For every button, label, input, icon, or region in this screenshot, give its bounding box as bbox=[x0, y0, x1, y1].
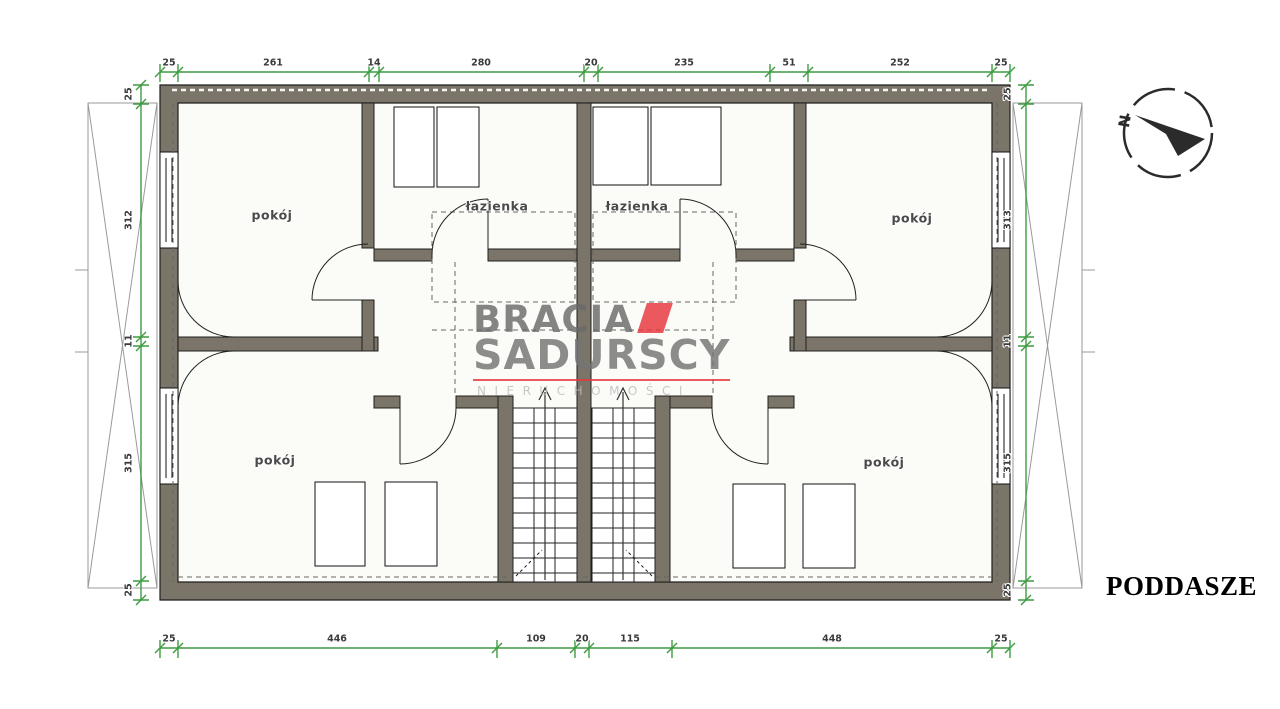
dim-bottom-3: 109 bbox=[526, 634, 546, 645]
room-label-pokoj-top-left: pokój bbox=[252, 208, 293, 223]
watermark-red-rule bbox=[473, 379, 730, 381]
floorplan-page: 25 261 14 280 20 235 51 252 25 25 446 10… bbox=[0, 0, 1280, 709]
dim-left-3: 11 bbox=[124, 334, 135, 347]
dim-top-3: 14 bbox=[367, 58, 380, 69]
room-label-lazienka-right: łazienka bbox=[606, 199, 669, 214]
dim-bottom-5: 115 bbox=[620, 634, 640, 645]
dim-bottom-6: 448 bbox=[822, 634, 842, 645]
dim-left-4: 315 bbox=[124, 453, 135, 473]
dim-right-4: 315 bbox=[1003, 453, 1014, 473]
dim-top-1: 25 bbox=[162, 58, 175, 69]
dim-right-1: 25 bbox=[1003, 87, 1014, 100]
dim-top-6: 235 bbox=[674, 58, 694, 69]
dim-bottom-7: 25 bbox=[994, 634, 1007, 645]
dim-top-9: 25 bbox=[994, 58, 1007, 69]
room-label-pokoj-bottom-right: pokój bbox=[864, 455, 905, 470]
dim-left-2: 312 bbox=[124, 210, 135, 230]
window-left-top bbox=[160, 152, 178, 248]
watermark-brand-line2: SADURSCY bbox=[473, 335, 730, 376]
dim-top-7: 51 bbox=[782, 58, 795, 69]
dim-bottom-4: 20 bbox=[575, 634, 588, 645]
dim-right-2: 313 bbox=[1003, 210, 1014, 230]
dim-top-8: 252 bbox=[890, 58, 910, 69]
dim-top-4: 280 bbox=[471, 58, 491, 69]
compass-icon bbox=[1124, 89, 1212, 177]
room-label-lazienka-left: łazienka bbox=[466, 199, 529, 214]
dimension-chain-right bbox=[1018, 80, 1034, 605]
dimension-chain-left bbox=[133, 80, 149, 605]
window-left-bottom bbox=[160, 388, 178, 484]
watermark-logo: BRACIA SADURSCY NIERUCHOMOŚCI bbox=[473, 301, 730, 397]
window-right-top bbox=[992, 152, 1010, 248]
dim-top-2: 261 bbox=[263, 58, 283, 69]
dim-right-5: 25 bbox=[1003, 583, 1014, 596]
room-label-pokoj-bottom-left: pokój bbox=[255, 453, 296, 468]
floor-title: PODDASZE bbox=[1106, 571, 1257, 602]
dim-top-5: 20 bbox=[584, 58, 597, 69]
dim-bottom-1: 25 bbox=[162, 634, 175, 645]
watermark-brand-line3: NIERUCHOMOŚCI bbox=[473, 385, 730, 397]
dim-right-3: 11 bbox=[1003, 334, 1014, 347]
dim-left-1: 25 bbox=[124, 87, 135, 100]
dim-left-5: 25 bbox=[124, 583, 135, 596]
dim-bottom-2: 446 bbox=[327, 634, 347, 645]
brand-logo-red-icon bbox=[637, 303, 673, 333]
room-label-pokoj-top-right: pokój bbox=[892, 211, 933, 226]
